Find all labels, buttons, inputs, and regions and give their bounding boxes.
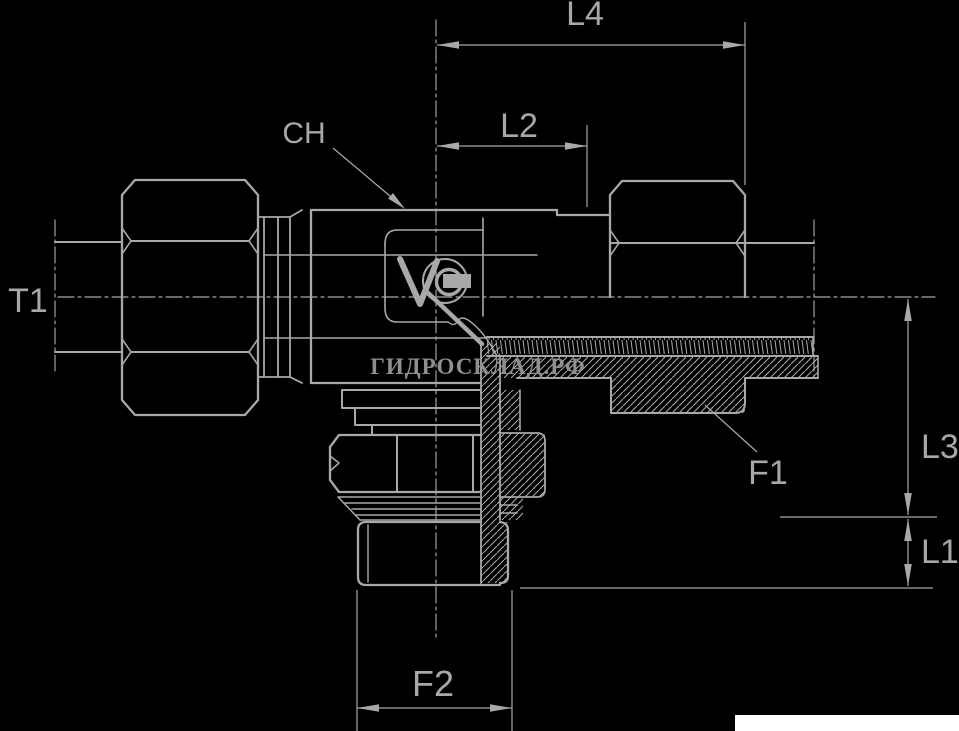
label-f1: F1 [748,454,788,492]
bottom-right-white-strip [735,715,959,731]
label-l4: L4 [566,0,604,33]
label-l2: L2 [500,107,538,145]
label-t1: T1 [8,282,48,320]
technical-drawing-page: L4 L2 CH T1 F1 L3 L1 F2 ГИДРОСКЛАД.РФ [0,0,959,731]
site-watermark: ГИДРОСКЛАД.РФ [370,354,585,379]
fitting-diagram: L4 L2 CH T1 F1 L3 L1 F2 ГИДРОСКЛАД.РФ [0,0,959,731]
label-l3: L3 [921,428,959,466]
label-l1: L1 [921,533,959,571]
label-f2: F2 [412,663,454,704]
label-ch: CH [282,117,325,150]
logo-tab [443,274,471,288]
